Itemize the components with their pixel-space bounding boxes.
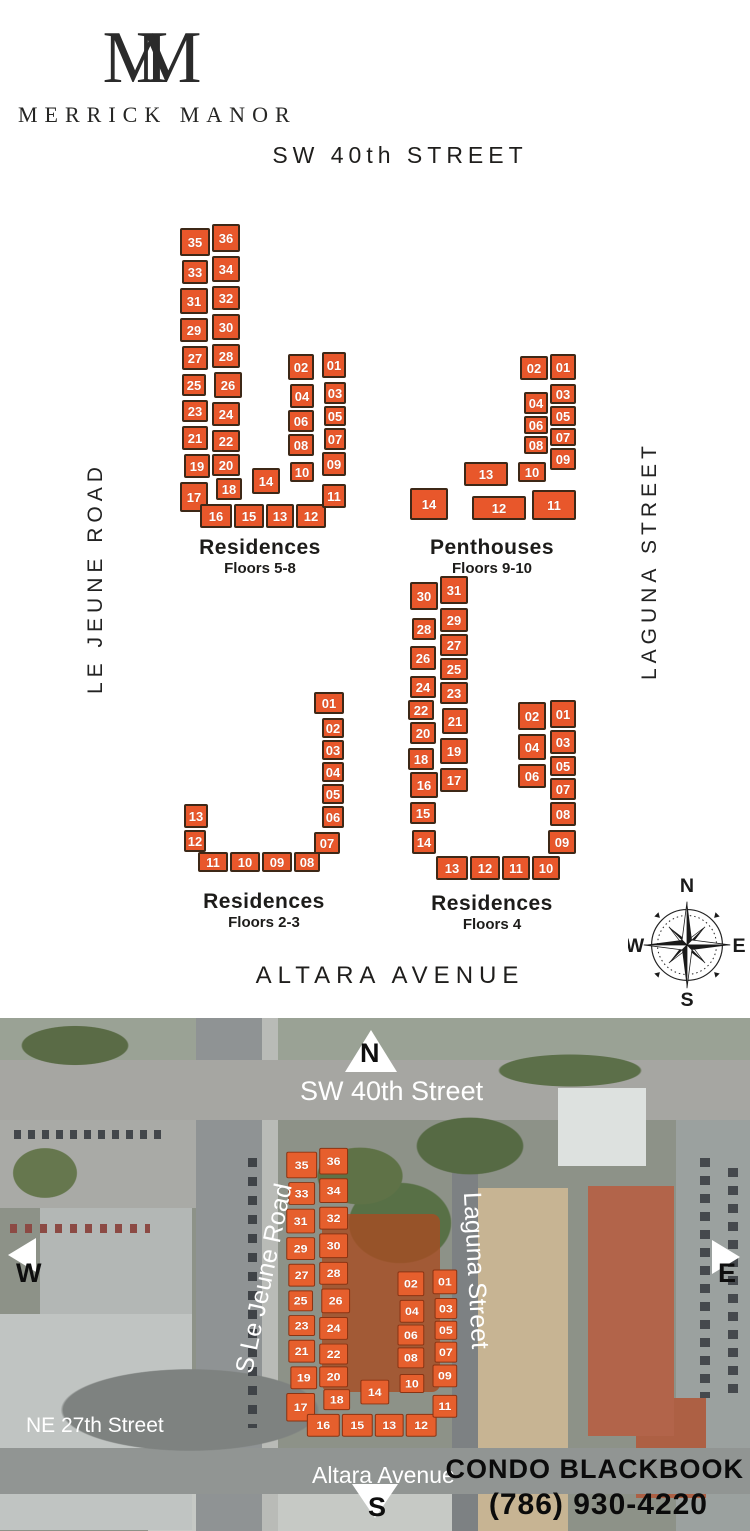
unit-residences-4-13[interactable]: 13 xyxy=(436,856,468,880)
unit-penthouses-9-10-04[interactable]: 04 xyxy=(524,392,548,414)
unit-penthouses-9-10-13[interactable]: 13 xyxy=(464,462,508,486)
unit-residences-4-01[interactable]: 01 xyxy=(550,700,576,728)
unit-penthouses-9-10-03[interactable]: 03 xyxy=(550,384,576,404)
unit-residences-4-06[interactable]: 06 xyxy=(518,764,546,788)
unit-residences-2-3-10[interactable]: 10 xyxy=(230,852,260,872)
unit-penthouses-9-10-01[interactable]: 01 xyxy=(550,354,576,380)
unit-penthouses-9-10-11[interactable]: 11 xyxy=(532,490,576,520)
unit-aerial-14[interactable]: 14 xyxy=(360,1380,389,1405)
unit-residences-5-8-25[interactable]: 25 xyxy=(182,374,206,396)
unit-residences-4-08[interactable]: 08 xyxy=(550,802,576,826)
unit-penthouses-9-10-02[interactable]: 02 xyxy=(520,356,548,380)
compass-north-label: N xyxy=(680,876,694,897)
unit-residences-5-8-31[interactable]: 31 xyxy=(180,288,208,314)
unit-aerial-19[interactable]: 19 xyxy=(290,1366,317,1389)
unit-aerial-20[interactable]: 20 xyxy=(319,1366,348,1387)
east-marker-label: E xyxy=(718,1258,736,1289)
unit-aerial-16[interactable]: 16 xyxy=(307,1414,340,1437)
unit-aerial-22[interactable]: 22 xyxy=(319,1344,348,1365)
unit-residences-2-3-04[interactable]: 04 xyxy=(322,762,344,782)
unit-aerial-04[interactable]: 04 xyxy=(400,1300,425,1323)
unit-residences-4-31[interactable]: 31 xyxy=(440,576,468,604)
unit-residences-5-8-19[interactable]: 19 xyxy=(184,454,210,478)
unit-residences-4-28[interactable]: 28 xyxy=(412,618,436,640)
aerial-footprint: 3536333431322930272825262324212219201718… xyxy=(278,1146,459,1439)
unit-aerial-13[interactable]: 13 xyxy=(375,1414,404,1437)
unit-residences-4-25[interactable]: 25 xyxy=(440,658,468,680)
unit-aerial-06[interactable]: 06 xyxy=(397,1325,424,1346)
unit-residences-4-23[interactable]: 23 xyxy=(440,682,468,704)
unit-residences-2-3-02[interactable]: 02 xyxy=(322,718,344,738)
unit-residences-4-22[interactable]: 22 xyxy=(408,700,434,720)
unit-residences-2-3-08[interactable]: 08 xyxy=(294,852,320,872)
unit-residences-5-8-05[interactable]: 05 xyxy=(324,406,346,426)
unit-residences-5-8-32[interactable]: 32 xyxy=(212,286,240,310)
west-marker-label: W xyxy=(16,1258,41,1289)
unit-residences-5-8-35[interactable]: 35 xyxy=(180,228,210,256)
unit-residences-4-07[interactable]: 07 xyxy=(550,778,576,800)
unit-residences-5-8-26[interactable]: 26 xyxy=(214,372,242,398)
unit-residences-4-05[interactable]: 05 xyxy=(550,756,576,776)
compass-rose-icon: N S W E xyxy=(628,876,746,1008)
unit-residences-5-8-04[interactable]: 04 xyxy=(290,384,314,408)
unit-residences-5-8-03[interactable]: 03 xyxy=(324,382,346,404)
unit-residences-4-11[interactable]: 11 xyxy=(502,856,530,880)
building-residences-5-8: 3536333431322930272825262324212219201718… xyxy=(172,222,348,530)
unit-aerial-10[interactable]: 10 xyxy=(400,1374,425,1393)
unit-aerial-07[interactable]: 07 xyxy=(435,1342,458,1363)
unit-aerial-05[interactable]: 05 xyxy=(435,1321,458,1340)
unit-aerial-18[interactable]: 18 xyxy=(323,1389,350,1410)
unit-residences-4-10[interactable]: 10 xyxy=(532,856,560,880)
unit-residences-4-20[interactable]: 20 xyxy=(410,722,436,744)
unit-residences-5-8-06[interactable]: 06 xyxy=(288,410,314,432)
unit-residences-2-3-11[interactable]: 11 xyxy=(198,852,228,872)
unit-residences-4-04[interactable]: 04 xyxy=(518,734,546,760)
unit-residences-5-8-13[interactable]: 13 xyxy=(266,504,294,528)
unit-residences-2-3-01[interactable]: 01 xyxy=(314,692,344,714)
compass-south-label: S xyxy=(680,989,693,1008)
unit-residences-4-21[interactable]: 21 xyxy=(442,708,468,734)
unit-residences-4-30[interactable]: 30 xyxy=(410,582,438,610)
aerial-ne27th-label: NE 27th Street xyxy=(26,1414,164,1438)
unit-penthouses-9-10-08[interactable]: 08 xyxy=(524,436,548,454)
unit-residences-4-16[interactable]: 16 xyxy=(410,772,438,798)
building-label-residences-2-3: ResidencesFloors 2-3 xyxy=(203,890,325,931)
unit-residences-2-3-06[interactable]: 06 xyxy=(322,806,344,828)
unit-aerial-12[interactable]: 12 xyxy=(406,1414,437,1437)
unit-aerial-29[interactable]: 29 xyxy=(286,1237,315,1260)
unit-penthouses-9-10-14[interactable]: 14 xyxy=(410,488,448,520)
unit-residences-4-26[interactable]: 26 xyxy=(410,646,436,670)
unit-residences-2-3-05[interactable]: 05 xyxy=(322,784,344,804)
building-label-residences-5-8: ResidencesFloors 5-8 xyxy=(199,536,321,577)
building-label-residences-4: ResidencesFloors 4 xyxy=(431,892,553,933)
unit-residences-5-8-30[interactable]: 30 xyxy=(212,314,240,340)
unit-residences-5-8-24[interactable]: 24 xyxy=(212,402,240,426)
unit-aerial-34[interactable]: 34 xyxy=(319,1178,348,1203)
building-residences-4: 3031282926272425222320211819161715141312… xyxy=(406,572,578,882)
unit-residences-4-03[interactable]: 03 xyxy=(550,730,576,754)
unit-residences-5-8-15[interactable]: 15 xyxy=(234,504,264,528)
north-marker-label: N xyxy=(360,1038,380,1069)
unit-residences-5-8-36[interactable]: 36 xyxy=(212,224,240,252)
unit-residences-5-8-16[interactable]: 16 xyxy=(200,504,232,528)
unit-residences-5-8-22[interactable]: 22 xyxy=(212,430,240,452)
compass-west-label: W xyxy=(628,935,645,957)
unit-aerial-03[interactable]: 03 xyxy=(435,1298,458,1319)
unit-residences-5-8-21[interactable]: 21 xyxy=(182,426,208,450)
unit-residences-5-8-23[interactable]: 23 xyxy=(182,400,208,422)
unit-aerial-23[interactable]: 23 xyxy=(288,1315,315,1336)
unit-residences-4-15[interactable]: 15 xyxy=(410,802,436,824)
unit-residences-2-3-09[interactable]: 09 xyxy=(262,852,292,872)
unit-aerial-32[interactable]: 32 xyxy=(319,1207,348,1230)
building-penthouses-9-10: 0201040306050807100913141211 xyxy=(406,350,578,528)
unit-residences-4-18[interactable]: 18 xyxy=(408,748,434,770)
unit-residences-4-29[interactable]: 29 xyxy=(440,608,468,632)
unit-residences-5-8-08[interactable]: 08 xyxy=(288,434,314,456)
unit-residences-5-8-07[interactable]: 07 xyxy=(324,428,346,450)
unit-aerial-26[interactable]: 26 xyxy=(321,1289,350,1314)
unit-residences-4-27[interactable]: 27 xyxy=(440,634,468,656)
unit-aerial-02[interactable]: 02 xyxy=(397,1271,424,1296)
unit-residences-2-3-13[interactable]: 13 xyxy=(184,804,208,828)
unit-aerial-11[interactable]: 11 xyxy=(433,1395,458,1418)
unit-aerial-28[interactable]: 28 xyxy=(319,1262,348,1285)
unit-residences-4-12[interactable]: 12 xyxy=(470,856,500,880)
unit-residences-5-8-02[interactable]: 02 xyxy=(288,354,314,380)
building-residences-2-3: 01020304050607080910111213 xyxy=(182,690,346,874)
condoblackbook-phone: (786) 930-4220 xyxy=(489,1488,708,1522)
compass-east-label: E xyxy=(733,935,746,957)
unit-residences-4-19[interactable]: 19 xyxy=(440,738,468,764)
unit-penthouses-9-10-12[interactable]: 12 xyxy=(472,496,526,520)
unit-aerial-30[interactable]: 30 xyxy=(319,1233,348,1258)
unit-aerial-01[interactable]: 01 xyxy=(433,1270,458,1295)
unit-aerial-09[interactable]: 09 xyxy=(433,1365,458,1388)
unit-aerial-35[interactable]: 35 xyxy=(286,1152,317,1179)
unit-residences-4-24[interactable]: 24 xyxy=(410,676,436,698)
unit-residences-5-8-14[interactable]: 14 xyxy=(252,468,280,494)
unit-residences-5-8-01[interactable]: 01 xyxy=(322,352,346,378)
unit-aerial-27[interactable]: 27 xyxy=(288,1264,315,1287)
unit-residences-5-8-28[interactable]: 28 xyxy=(212,344,240,368)
unit-residences-4-02[interactable]: 02 xyxy=(518,702,546,730)
unit-penthouses-9-10-10[interactable]: 10 xyxy=(518,462,546,482)
unit-residences-4-17[interactable]: 17 xyxy=(440,768,468,792)
unit-residences-4-14[interactable]: 14 xyxy=(412,830,436,854)
unit-residences-5-8-20[interactable]: 20 xyxy=(212,454,240,476)
unit-residences-5-8-29[interactable]: 29 xyxy=(180,318,208,342)
unit-aerial-15[interactable]: 15 xyxy=(342,1414,373,1437)
unit-residences-4-09[interactable]: 09 xyxy=(548,830,576,854)
unit-residences-5-8-27[interactable]: 27 xyxy=(182,346,208,370)
south-marker-label: S xyxy=(368,1492,386,1523)
unit-aerial-21[interactable]: 21 xyxy=(288,1340,315,1363)
site-plan-page: MM MERRICK MANOR SW 40th STREET LE JEUNE… xyxy=(0,0,750,1531)
unit-aerial-25[interactable]: 25 xyxy=(288,1290,313,1311)
unit-residences-5-8-09[interactable]: 09 xyxy=(322,452,346,476)
condoblackbook-brand: CONDO BLACKBOOK xyxy=(446,1454,745,1485)
building-label-penthouses-9-10: PenthousesFloors 9-10 xyxy=(430,536,554,577)
aerial-photo: 3536333431322930272825262324212219201718… xyxy=(0,1018,750,1531)
unit-aerial-36[interactable]: 36 xyxy=(319,1148,348,1175)
unit-residences-5-8-12[interactable]: 12 xyxy=(296,504,326,528)
unit-residences-5-8-34[interactable]: 34 xyxy=(212,256,240,282)
unit-aerial-08[interactable]: 08 xyxy=(397,1347,424,1368)
unit-aerial-24[interactable]: 24 xyxy=(319,1317,348,1340)
unit-residences-2-3-12[interactable]: 12 xyxy=(184,830,206,852)
unit-penthouses-9-10-05[interactable]: 05 xyxy=(550,406,576,426)
unit-residences-5-8-33[interactable]: 33 xyxy=(182,260,208,284)
unit-residences-5-8-18[interactable]: 18 xyxy=(216,478,242,500)
unit-penthouses-9-10-09[interactable]: 09 xyxy=(550,448,576,470)
unit-penthouses-9-10-06[interactable]: 06 xyxy=(524,416,548,434)
unit-penthouses-9-10-07[interactable]: 07 xyxy=(550,428,576,446)
aerial-sw40th-label: SW 40th Street xyxy=(300,1076,483,1107)
unit-residences-5-8-10[interactable]: 10 xyxy=(290,462,314,482)
unit-residences-2-3-07[interactable]: 07 xyxy=(314,832,340,854)
unit-residences-2-3-03[interactable]: 03 xyxy=(322,740,344,760)
unit-residences-5-8-11[interactable]: 11 xyxy=(322,484,346,508)
